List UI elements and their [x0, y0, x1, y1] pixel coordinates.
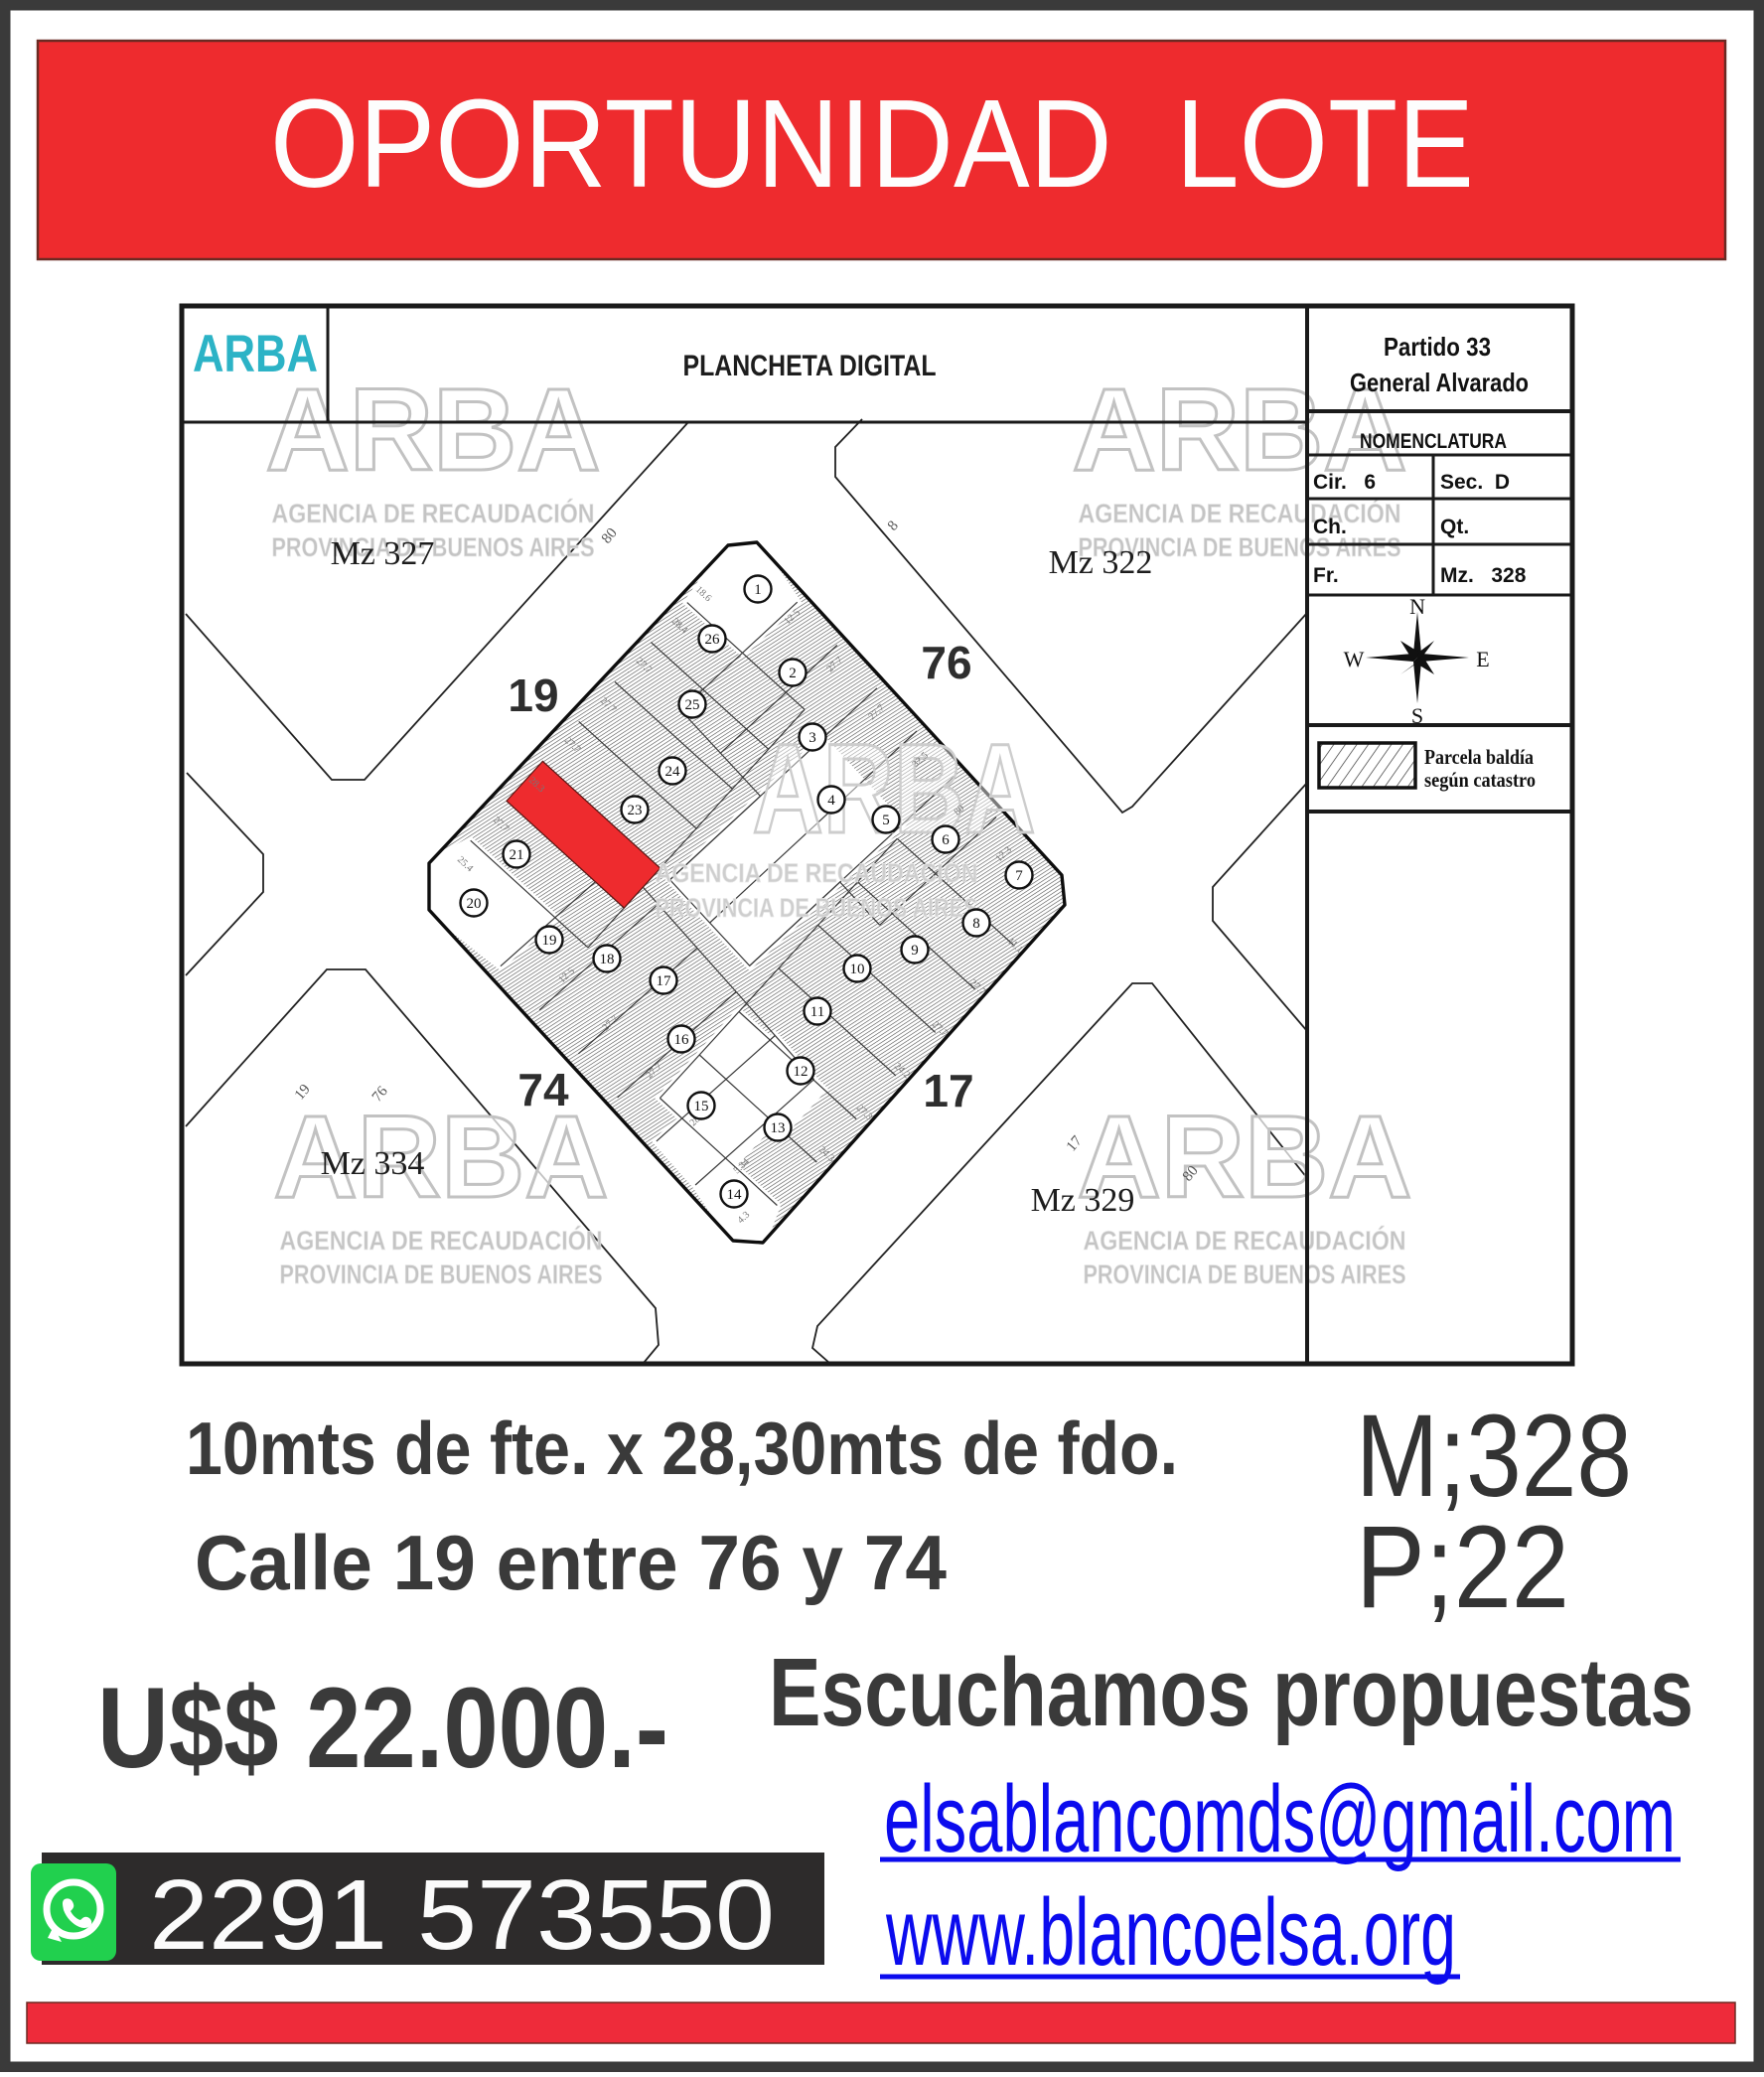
svg-text:13: 13 — [771, 1120, 786, 1136]
svg-text:24: 24 — [665, 764, 681, 780]
svg-text:Mz 327: Mz 327 — [331, 535, 435, 572]
svg-text:AGENCIA DE RECAUDACIÓN: AGENCIA DE RECAUDACIÓN — [272, 498, 595, 528]
svg-text:www.blancoelsa.org: www.blancoelsa.org — [885, 1879, 1456, 1986]
svg-text:12: 12 — [794, 1064, 808, 1080]
svg-text:Sec. D: Sec. D — [1440, 471, 1510, 494]
svg-text:Mz 334: Mz 334 — [321, 1145, 425, 1182]
svg-text:Parcela baldía: Parcela baldía — [1424, 745, 1534, 769]
svg-text:9: 9 — [911, 943, 919, 959]
svg-text:4: 4 — [827, 793, 835, 809]
svg-text:17: 17 — [657, 973, 672, 989]
svg-text:P;22: P;22 — [1356, 1502, 1569, 1633]
svg-text:W: W — [1344, 647, 1365, 671]
svg-text:16: 16 — [674, 1032, 690, 1048]
svg-text:Qt.: Qt. — [1440, 516, 1469, 538]
svg-text:21: 21 — [510, 847, 524, 863]
svg-text:19: 19 — [542, 933, 557, 949]
svg-text:2291 573550: 2291 573550 — [149, 1859, 775, 1971]
svg-text:ARBA: ARBA — [193, 325, 318, 383]
svg-text:PROVINCIA DE BUENOS AIRES: PROVINCIA DE BUENOS AIRES — [280, 1260, 603, 1289]
svg-text:14: 14 — [727, 1187, 743, 1203]
svg-text:10mts de fte. x 28,30mts de fd: 10mts de fte. x 28,30mts de fdo. — [186, 1407, 1178, 1490]
svg-text:AGENCIA DE RECAUDACIÓN: AGENCIA DE RECAUDACIÓN — [1079, 498, 1401, 528]
svg-text:Fr.: Fr. — [1313, 564, 1339, 587]
svg-text:E: E — [1476, 647, 1489, 671]
svg-text:PROVINCIA DE BUENOS AIRES: PROVINCIA DE BUENOS AIRES — [656, 893, 978, 923]
svg-text:Escuchamos propuestas: Escuchamos propuestas — [769, 1638, 1693, 1746]
svg-text:17: 17 — [923, 1065, 973, 1116]
svg-text:PLANCHETA DIGITAL: PLANCHETA DIGITAL — [683, 350, 937, 382]
svg-text:2: 2 — [789, 666, 797, 681]
svg-text:General Alvarado: General Alvarado — [1350, 368, 1529, 397]
svg-text:AGENCIA DE RECAUDACIÓN: AGENCIA DE RECAUDACIÓN — [656, 857, 978, 888]
svg-text:Partido 33: Partido 33 — [1384, 332, 1491, 362]
svg-text:76: 76 — [921, 637, 971, 688]
svg-text:1: 1 — [754, 582, 762, 598]
svg-text:NOMENCLATURA: NOMENCLATURA — [1360, 430, 1507, 453]
svg-text:Mz 329: Mz 329 — [1031, 1182, 1135, 1219]
svg-text:19: 19 — [508, 669, 558, 721]
svg-text:10: 10 — [850, 962, 865, 977]
svg-text:N: N — [1409, 594, 1425, 619]
svg-text:5: 5 — [882, 813, 890, 828]
svg-text:Cir. 6: Cir. 6 — [1313, 471, 1376, 494]
svg-text:11: 11 — [810, 1004, 824, 1020]
svg-text:PROVINCIA DE BUENOS AIRES: PROVINCIA DE BUENOS AIRES — [1084, 1260, 1406, 1289]
svg-text:AGENCIA DE RECAUDACIÓN: AGENCIA DE RECAUDACIÓN — [1084, 1225, 1406, 1256]
svg-text:U$$ 22.000.-: U$$ 22.000.- — [97, 1665, 668, 1792]
svg-text:según catastro: según catastro — [1424, 768, 1536, 792]
svg-text:25: 25 — [685, 697, 700, 713]
svg-text:Mz 322: Mz 322 — [1049, 544, 1153, 581]
svg-text:Mz. 328: Mz. 328 — [1440, 564, 1527, 587]
svg-text:3: 3 — [808, 730, 816, 746]
svg-text:74: 74 — [517, 1064, 569, 1115]
svg-text:ARBA: ARBA — [266, 365, 601, 496]
svg-text:Ch.: Ch. — [1313, 516, 1347, 538]
svg-text:20: 20 — [467, 896, 482, 912]
svg-text:15: 15 — [694, 1099, 709, 1114]
svg-text:Calle 19 entre 76 y 74: Calle 19 entre 76 y 74 — [195, 1519, 947, 1606]
svg-text:AGENCIA DE RECAUDACIÓN: AGENCIA DE RECAUDACIÓN — [280, 1225, 603, 1256]
svg-text:elsablancomds@gmail.com: elsablancomds@gmail.com — [884, 1766, 1676, 1872]
svg-text:7: 7 — [1015, 868, 1023, 884]
svg-text:ARBA: ARBA — [753, 718, 1036, 860]
svg-text:6: 6 — [942, 832, 950, 848]
svg-text:26: 26 — [705, 632, 721, 648]
svg-text:18: 18 — [600, 952, 615, 967]
svg-text:23: 23 — [628, 803, 643, 818]
svg-text:OPORTUNIDAD LOTE: OPORTUNIDAD LOTE — [270, 74, 1474, 214]
svg-text:8: 8 — [972, 916, 980, 932]
